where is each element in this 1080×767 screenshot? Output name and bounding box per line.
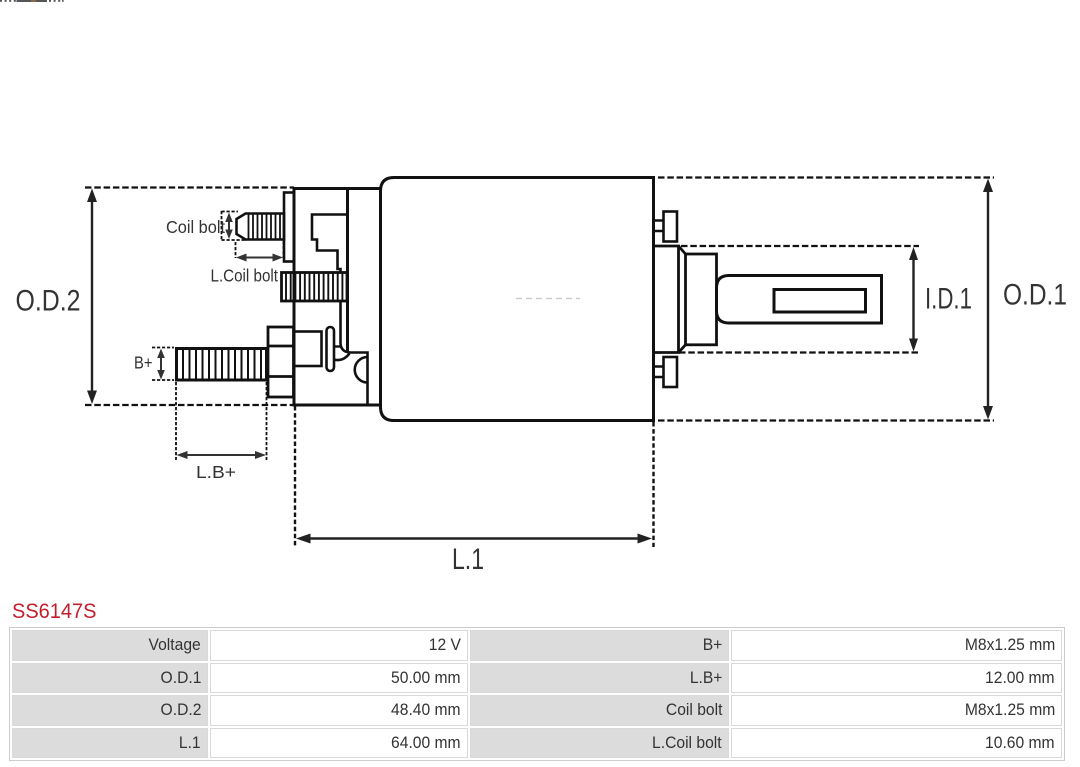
svg-text:L.B+: L.B+: [196, 462, 236, 482]
svg-text:L.1: L.1: [452, 543, 484, 576]
svg-text:L.Coil bolt: L.Coil bolt: [211, 266, 279, 286]
svg-text:I.D.1: I.D.1: [925, 283, 972, 316]
svg-text:O.D.2: O.D.2: [16, 285, 81, 318]
svg-text:B+: B+: [134, 353, 153, 373]
svg-text:O.D.1: O.D.1: [1003, 279, 1067, 312]
svg-text:Coil bolt: Coil bolt: [166, 217, 225, 237]
